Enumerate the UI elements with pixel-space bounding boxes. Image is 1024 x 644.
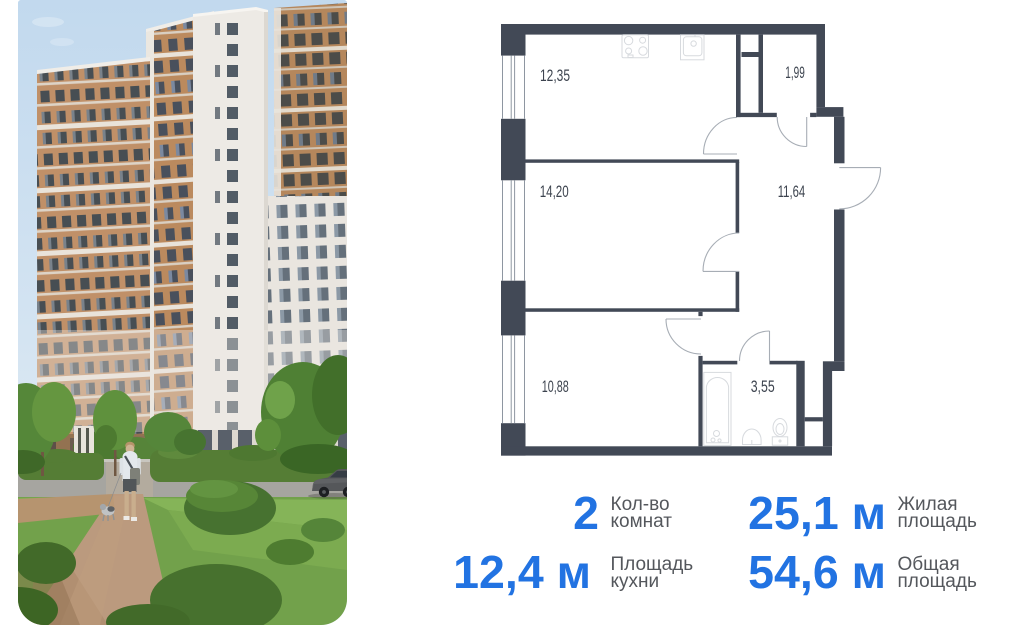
svg-text:14,20: 14,20	[540, 182, 569, 201]
svg-text:1,99: 1,99	[785, 63, 805, 82]
svg-text:12,35: 12,35	[540, 66, 570, 85]
svg-text:11,64: 11,64	[778, 182, 806, 201]
svg-text:3,55: 3,55	[751, 377, 775, 396]
svg-text:10,88: 10,88	[542, 377, 569, 396]
